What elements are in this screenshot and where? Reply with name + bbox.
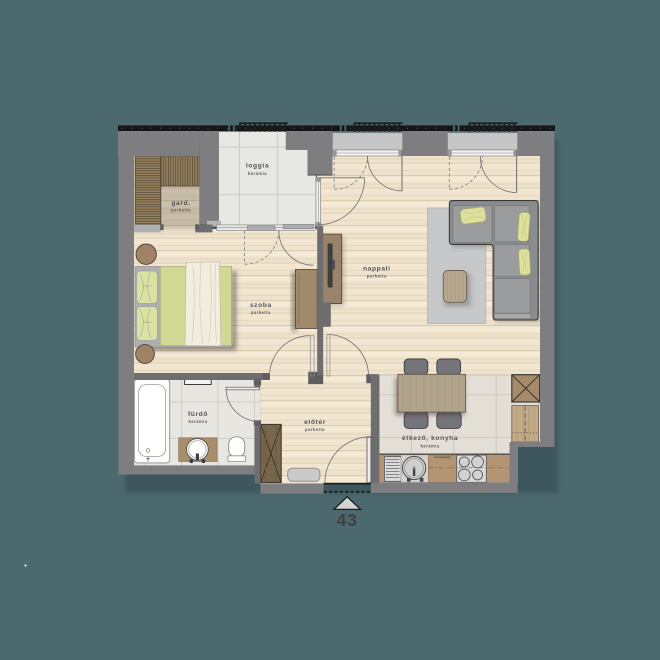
svg-text:kerámia: kerámia xyxy=(188,419,207,424)
svg-text:előtér: előtér xyxy=(304,419,326,426)
svg-text:nappali: nappali xyxy=(363,266,391,273)
svg-text:kerámia: kerámia xyxy=(420,444,439,449)
svg-text:loggia: loggia xyxy=(246,163,269,170)
svg-text:fürdő: fürdő xyxy=(188,411,208,418)
svg-text:kerámia: kerámia xyxy=(248,171,267,176)
svg-text:43: 43 xyxy=(336,510,357,530)
svg-text:parketta: parketta xyxy=(251,310,271,315)
svg-text:parketta: parketta xyxy=(367,273,387,278)
svg-text:étkező, konyha: étkező, konyha xyxy=(402,435,458,442)
svg-text:parketta: parketta xyxy=(305,427,325,432)
svg-text:mosogatógép: mosogatógép xyxy=(434,456,451,459)
svg-text:gard.: gard. xyxy=(171,200,190,207)
svg-text:parketta: parketta xyxy=(171,208,191,213)
svg-text:szoba: szoba xyxy=(250,302,272,309)
